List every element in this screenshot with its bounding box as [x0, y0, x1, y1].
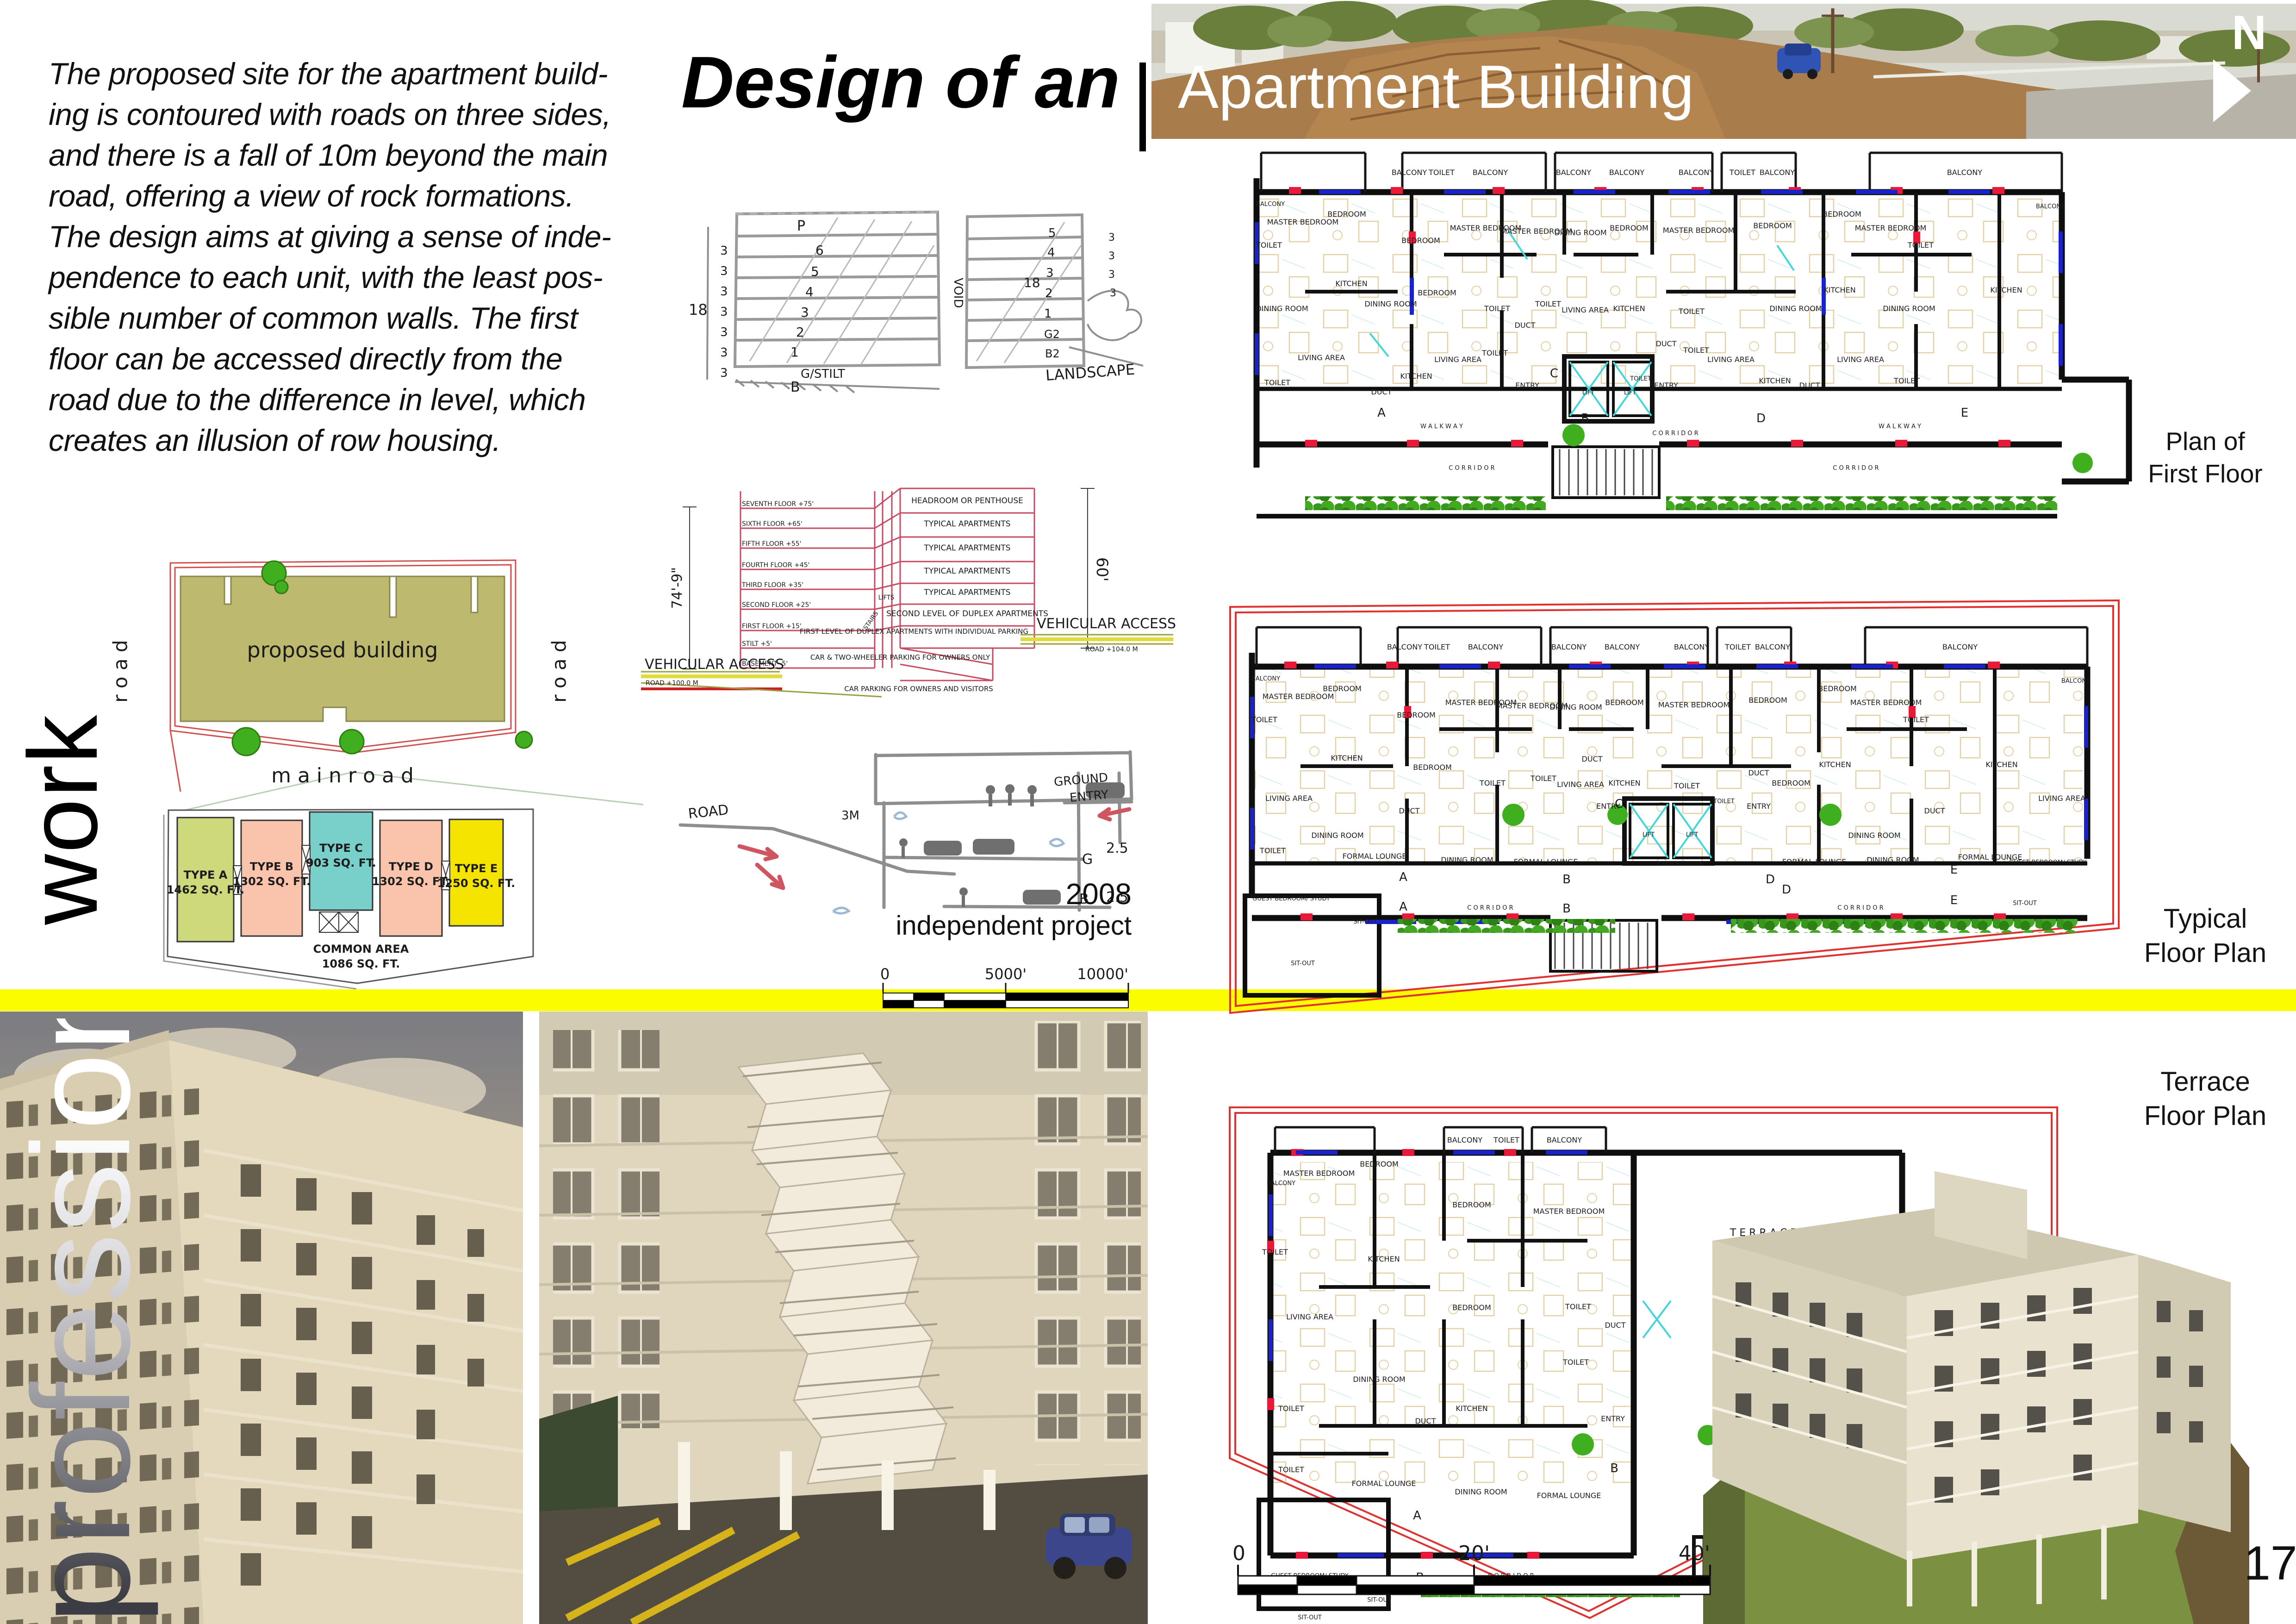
- room-label: BALCONY: [1755, 643, 1791, 651]
- room-label: DINING ROOM: [1769, 304, 1822, 313]
- sketch-r1: 1: [1044, 307, 1052, 321]
- caption-first-floor: Plan of First Floor: [2117, 425, 2293, 490]
- room-label: BALCONY: [1267, 1180, 1295, 1187]
- sketch-tick-3: 3: [720, 305, 728, 319]
- title-separator-bar: [1139, 62, 1146, 151]
- render-photo-staircase: [539, 1012, 1148, 1624]
- room-label: DINING ROOM: [1549, 703, 1602, 712]
- scale-bar-site: 0 5000' 10000': [875, 965, 1143, 1016]
- room-label: LIFT: [1624, 389, 1636, 396]
- zone-headroom: HEADROOM OR PENTHOUSE: [911, 496, 1023, 506]
- type-b-area: 1302 SQ. FT.: [233, 875, 311, 888]
- sketch-g2: G2: [1044, 328, 1060, 341]
- scale-bar-plan: 0 20' 40': [1229, 1542, 1733, 1606]
- room-label: DUCT: [1605, 1321, 1626, 1330]
- room-label: TOILET: [1479, 779, 1506, 787]
- room-label: LIFT: [1582, 389, 1594, 396]
- room-label: TOILET: [1428, 168, 1455, 177]
- corridor-label: C O R R I D O R: [1657, 861, 1703, 868]
- room-label: TOILET: [1565, 1302, 1591, 1311]
- room-label: BEDROOM: [1772, 779, 1811, 787]
- credit-type: independent project: [861, 911, 1132, 941]
- room-label: BEDROOM: [1818, 684, 1857, 693]
- room-label: LIVING AREA: [1557, 780, 1604, 789]
- room-label: TOILET: [1264, 378, 1290, 387]
- caption-typical-floor: Typical Floor Plan: [2117, 902, 2293, 970]
- room-label: BEDROOM: [1748, 696, 1787, 705]
- room-label: BALCONY: [1947, 168, 1983, 177]
- room-label: FORMAL LOUNGE: [1352, 1479, 1416, 1488]
- room-label: SIT-OUT: [1291, 960, 1315, 967]
- room-label: KITCHEN: [1613, 304, 1645, 313]
- room-label: LIFT: [1643, 831, 1655, 838]
- room-label: LIVING AREA: [1298, 353, 1345, 362]
- label-lifts: LIFTS: [878, 594, 895, 601]
- sketch-r-3: 3: [1108, 269, 1115, 281]
- room-label: BEDROOM: [1413, 763, 1452, 772]
- room-label: DUCT: [1415, 1417, 1436, 1425]
- floor-6: SIXTH FLOOR +65': [742, 520, 803, 528]
- zone-typ1: TYPICAL APARTMENTS: [923, 519, 1010, 529]
- sketch-tick-3: 3: [720, 346, 728, 360]
- room-label: GUEST BEDROOM/ STUDY: [1252, 895, 1330, 902]
- room-label: BALCONY: [1674, 643, 1710, 651]
- room-label: TOILET: [1893, 376, 1920, 385]
- room-label: BEDROOM: [1323, 684, 1362, 693]
- common-area-area: 1086 SQ. FT.: [322, 957, 400, 970]
- grid-marker-b: B: [1562, 902, 1571, 916]
- sketch-r5: 5: [1048, 226, 1056, 240]
- room-label: BALCONY: [1468, 643, 1504, 651]
- scale-0: 0: [1232, 1542, 1245, 1565]
- grid-marker-d: D: [1782, 883, 1791, 897]
- page-number: 17: [2244, 1536, 2296, 1591]
- floor-3: THIRD FLOOR +35': [741, 581, 803, 589]
- room-label: KITCHEN: [1368, 1255, 1400, 1263]
- room-label: KITCHEN: [1335, 279, 1367, 288]
- site-building-label: proposed building: [247, 637, 438, 662]
- room-label: DUCT: [1399, 806, 1420, 815]
- room-label: ENTRY: [1601, 1414, 1625, 1423]
- room-label: DUCT: [1799, 381, 1820, 390]
- room-label: BALCONY: [1760, 168, 1795, 177]
- scale-10000: 10000': [1077, 965, 1128, 983]
- grid-marker-d: D: [1756, 412, 1766, 425]
- room-label: MASTER BEDROOM: [1267, 218, 1339, 226]
- room-label: BALCONY: [1605, 643, 1640, 651]
- grid-marker-a: A: [1377, 406, 1386, 420]
- vehicular-access-left: VEHICULAR ACCESS: [645, 656, 784, 673]
- room-label: TOILET: [1724, 643, 1751, 651]
- room-label: TOILET: [1278, 1404, 1304, 1413]
- render-aerial-building: [1648, 1143, 2249, 1624]
- room-label: TOILET: [1674, 781, 1700, 790]
- room-label: BEDROOM: [1823, 210, 1861, 219]
- floor-7: SEVENTH FLOOR +75': [742, 500, 814, 508]
- room-label: LIFT: [1686, 831, 1698, 838]
- dim-60: 60': [1093, 557, 1111, 582]
- sketch-label-b: B: [790, 379, 800, 395]
- portfolio-page: The proposed site for the apartment buil…: [0, 0, 2296, 1624]
- room-label: LIVING AREA: [1434, 355, 1481, 364]
- room-label: BEDROOM: [1360, 1160, 1399, 1168]
- room-label: BEDROOM: [1605, 698, 1644, 707]
- room-label: TOILET: [1907, 241, 1934, 250]
- room-label: BALCONY: [1942, 643, 1978, 651]
- sketch-road: ROAD: [687, 802, 729, 822]
- walkway-label: W A L K W A Y: [1420, 423, 1463, 430]
- room-label: DINING ROOM: [1883, 304, 1935, 313]
- room-label: LIVING AREA: [1265, 794, 1313, 803]
- room-label: LIVING AREA: [2038, 794, 2085, 803]
- room-label: KITCHEN: [1819, 760, 1851, 769]
- room-label: TOILET: [1278, 1465, 1304, 1474]
- room-label: KITCHEN: [1400, 372, 1432, 381]
- sketch-label-landscape: LANDSCAPE: [1045, 361, 1135, 384]
- room-label: KITCHEN: [1823, 286, 1855, 294]
- room-label: DINING ROOM: [1554, 228, 1606, 237]
- sketch-r-18: 18: [1024, 275, 1040, 290]
- sketch-label-2: 2: [796, 325, 804, 340]
- room-label: BALCONY: [1447, 1136, 1483, 1144]
- room-label: LIVING AREA: [1837, 355, 1884, 364]
- room-label: BALCONY: [1547, 1136, 1582, 1144]
- room-label: KITCHEN: [1331, 754, 1363, 762]
- type-a-name: TYPE A: [184, 868, 228, 881]
- sketch-dim-18: 18: [689, 301, 708, 319]
- grid-marker-b: B: [1581, 412, 1589, 425]
- room-label: ENTRY: [1654, 381, 1678, 390]
- room-label: DUCT: [1582, 755, 1603, 763]
- room-label: DUCT: [1656, 339, 1677, 348]
- room-label: BEDROOM: [1452, 1200, 1491, 1209]
- scale-20: 20': [1458, 1542, 1490, 1565]
- room-label: FORMAL LOUNGE: [1537, 1491, 1601, 1500]
- room-label: TOILET: [1535, 300, 1561, 308]
- title-prefix: Design of an: [681, 41, 1120, 125]
- sketch-label-4: 4: [805, 284, 814, 300]
- room-label: MASTER BEDROOM: [1533, 1207, 1605, 1216]
- room-label: LIVING AREA: [1707, 355, 1755, 364]
- room-label: BALCONY: [1473, 168, 1508, 177]
- zone-typ4: TYPICAL APARTMENTS: [923, 588, 1010, 597]
- room-label: KITCHEN: [1608, 779, 1640, 787]
- site-main-road: m a i n r o a d: [271, 764, 414, 787]
- room-label: BALCONY: [1609, 168, 1645, 177]
- sketch-tick-3: 3: [720, 285, 728, 299]
- corridor-label: C O R R I D O R: [1449, 465, 1494, 472]
- room-label: ENTRY: [1747, 802, 1771, 811]
- sketch-3m: 3M: [841, 809, 859, 823]
- sketch-label-stilt: G/STILT: [801, 367, 845, 381]
- room-label: DUCT: [1924, 806, 1945, 815]
- sketch-label-3: 3: [801, 305, 809, 320]
- room-label: DINING ROOM: [1848, 831, 1900, 840]
- walkway-label: W A L K W A Y: [1879, 423, 1921, 430]
- room-label: KITCHEN: [1456, 1404, 1487, 1413]
- grid-marker-d: D: [1766, 873, 1775, 887]
- corridor-label: C O R R I D O R: [1833, 465, 1879, 472]
- scale-40: 40': [1679, 1542, 1710, 1565]
- room-label: TOILET: [1424, 643, 1450, 651]
- corridor-label: C O R R I D O R: [1652, 430, 1698, 437]
- room-label: TOILET: [1262, 1248, 1288, 1256]
- sketch-tick-3: 3: [720, 366, 728, 380]
- room-label: MASTER BEDROOM: [1850, 698, 1922, 707]
- typical-floor-plan: BALCONY TOILET BALCONY BALCONY BALCONY B…: [1226, 600, 2124, 1016]
- project-credit: 2008 independent project: [861, 877, 1132, 941]
- grid-marker-a: A: [1413, 1509, 1421, 1523]
- road-104: ROAD +104.0 M: [1085, 646, 1138, 653]
- sketch-r4: 4: [1047, 246, 1055, 260]
- room-label: LIVING AREA: [1286, 1312, 1333, 1321]
- sketch-label-void: VOID: [951, 278, 965, 308]
- room-label: BALCONY: [1251, 675, 1280, 682]
- type-e-name: TYPE E: [455, 862, 498, 875]
- room-label: BALCONY: [1551, 643, 1587, 651]
- vehicular-access-right: VEHICULAR ACCESS: [1037, 616, 1176, 632]
- room-label: TOILET: [1256, 241, 1282, 250]
- room-label: MASTER BEDROOM: [1263, 692, 1334, 701]
- sketch-r-3: 3: [1108, 250, 1115, 262]
- sketch-label-1: 1: [790, 344, 799, 360]
- room-label: DINING ROOM: [1867, 856, 1919, 864]
- zone-parking-owners: CAR & TWO-WHEELER PARKING FOR OWNERS ONL…: [810, 653, 990, 662]
- floor-1: FIRST FLOOR +15': [742, 623, 802, 630]
- caption-terrace-floor: Terrace Floor Plan: [2117, 1065, 2293, 1133]
- room-label: MASTER BEDROOM: [1663, 226, 1735, 235]
- sketch-label-p: P: [797, 218, 805, 234]
- room-label: DINING ROOM: [1353, 1375, 1405, 1384]
- room-label: MASTER BEDROOM: [1855, 224, 1927, 232]
- type-b-name: TYPE B: [250, 860, 293, 873]
- room-label: TOILET: [1259, 846, 1286, 855]
- room-label: TOILET: [1713, 798, 1734, 805]
- room-label: DINING ROOM: [1256, 304, 1308, 313]
- grid-marker-e: E: [1950, 863, 1958, 877]
- type-c-name: TYPE C: [319, 842, 363, 855]
- floor-stilt: STILT +5': [742, 640, 772, 648]
- grid-marker-b: B: [1562, 873, 1571, 887]
- room-label: BALCONY: [1556, 168, 1592, 177]
- grid-marker-c: C: [1615, 797, 1623, 811]
- title-main: Apartment Building: [1178, 52, 1694, 122]
- site-road-right: r o a d: [548, 640, 571, 702]
- grid-marker-c: C: [1550, 367, 1558, 381]
- room-label: DUCT: [1515, 321, 1536, 330]
- room-label: TOILET: [1530, 774, 1556, 783]
- sketch-label-5: 5: [811, 264, 819, 279]
- zone-typ2: TYPICAL APARTMENTS: [923, 543, 1010, 553]
- room-label: LIVING AREA: [1562, 306, 1609, 314]
- scale-0: 0: [880, 965, 890, 983]
- site-plan: proposed building r o a d r o a d m a i …: [46, 532, 648, 819]
- corridor-label: C O R R I D O R: [1837, 905, 1883, 912]
- room-label: TOILET: [1484, 304, 1510, 313]
- professional-side-label: professional: [1, 1018, 161, 1624]
- room-label: MASTER BEDROOM: [1283, 1169, 1355, 1178]
- room-label: BEDROOM: [1401, 236, 1440, 245]
- zone-parking-visitors: CAR PARKING FOR OWNERS AND VISITORS: [844, 685, 993, 693]
- sketch-r3: 3: [1046, 266, 1054, 280]
- sketch-tick-3: 3: [720, 264, 728, 278]
- dim-74-9: 74'-9": [669, 567, 685, 609]
- room-label: ENTRY: [1515, 381, 1539, 390]
- sketch-b2: B2: [1045, 347, 1060, 360]
- room-label: TOILET: [1630, 375, 1651, 382]
- zone-duplex2: SECOND LEVEL OF DUPLEX APARTMENTS: [886, 609, 1048, 618]
- sketch-25a: 2.5: [1106, 840, 1128, 856]
- north-compass-label: N: [2232, 6, 2266, 61]
- room-label: TOILET: [1493, 1136, 1519, 1144]
- type-d-name: TYPE D: [389, 860, 433, 873]
- room-label: KITCHEN: [1990, 286, 2022, 294]
- room-label: BALCONY: [2061, 678, 2090, 685]
- room-label: KITCHEN: [1759, 376, 1791, 385]
- floor-2: SECOND FLOOR +25': [742, 601, 811, 609]
- sketch-r-3: 3: [1108, 232, 1115, 244]
- room-label: TOILET: [1903, 715, 1929, 724]
- room-label: BEDROOM: [1753, 221, 1792, 230]
- room-label: BALCONY: [1679, 168, 1714, 177]
- intro-paragraph: The proposed site for the apartment buil…: [49, 53, 687, 461]
- scale-5000: 5000': [985, 965, 1027, 983]
- room-label: KITCHEN: [1985, 760, 2017, 769]
- unit-type-legend: TYPE A 1462 SQ. FT. TYPE B 1302 SQ. FT. …: [157, 796, 546, 995]
- room-label: DUCT: [1371, 387, 1392, 396]
- room-label: BEDROOM: [1327, 210, 1366, 219]
- concept-sketch-elevation: P 6 5 4 3 2 1 G/STILT B 3 3 3 3 3 3 3 18…: [680, 171, 1152, 394]
- room-label: SIT-OUT: [2013, 900, 2037, 907]
- room-label: FORMAL LOUNGE: [1514, 857, 1578, 866]
- room-label: BALCONY: [1256, 201, 1285, 208]
- common-area-name: COMMON AREA: [313, 943, 409, 956]
- room-label: TOILET: [1481, 349, 1508, 357]
- room-label: TOILET: [1678, 307, 1705, 316]
- grid-marker-b: B: [1610, 1462, 1618, 1475]
- room-label: DINING ROOM: [1364, 300, 1417, 308]
- sketch-r2: 2: [1045, 287, 1053, 300]
- grid-marker-e: E: [1950, 893, 1958, 907]
- room-label: FORMAL LOUNGE: [1343, 852, 1407, 861]
- room-label: BALCONY: [2036, 203, 2065, 210]
- room-label: BEDROOM: [1397, 711, 1436, 719]
- north-arrow-icon: [2213, 59, 2251, 122]
- room-label: DINING ROOM: [1441, 856, 1493, 864]
- corridor-label: C O R R I D O R: [1467, 905, 1513, 912]
- zone-duplex1: FIRST LEVEL OF DUPLEX APARTMENTS WITH IN…: [800, 627, 1028, 636]
- room-label: BALCONY: [1392, 168, 1427, 177]
- room-label: TOILET: [1729, 168, 1755, 177]
- road-100: ROAD +100.0 M: [646, 680, 698, 687]
- room-label: BALCONY: [1387, 643, 1423, 651]
- room-label: TOILET: [1562, 1358, 1589, 1367]
- credit-year: 2008: [861, 877, 1132, 911]
- sketch-label-6: 6: [815, 243, 824, 258]
- room-label: DINING ROOM: [1311, 831, 1363, 840]
- room-label: GUEST BEDROOM/ STUDY: [2009, 859, 2087, 866]
- room-label: BEDROOM: [1610, 224, 1649, 232]
- grid-marker-a: A: [1399, 870, 1407, 884]
- room-label: DUCT: [1748, 768, 1769, 777]
- sketch-tick-3: 3: [720, 244, 728, 258]
- sketch-r-3: 3: [1110, 287, 1116, 299]
- room-label: TOILET: [1683, 346, 1709, 355]
- grid-marker-a: A: [1399, 900, 1407, 914]
- room-label: BEDROOM: [1452, 1303, 1491, 1312]
- type-c-area: 903 SQ. FT.: [306, 856, 376, 869]
- room-label: SIT-OUT: [1353, 918, 1377, 925]
- room-label: SIT-OUT: [1298, 1614, 1322, 1621]
- floor-5: FIFTH FLOOR +55': [742, 540, 801, 548]
- room-label: BEDROOM: [1418, 288, 1456, 297]
- room-label: FORMAL LOUNGE: [1782, 857, 1847, 866]
- room-label: TOILET: [1251, 715, 1277, 724]
- sketch-g: G: [1082, 851, 1093, 868]
- first-floor-plan: BALCONY TOILET BALCONY BALCONY BALCONY B…: [1250, 139, 2134, 532]
- type-e-area: 1250 SQ. FT.: [437, 877, 516, 890]
- sketch-tick-3: 3: [720, 325, 728, 339]
- room-label: DINING ROOM: [1455, 1487, 1507, 1496]
- grid-marker-e: E: [1961, 406, 1968, 420]
- section-diagram: SEVENTH FLOOR +75' SIXTH FLOOR +65' FIFT…: [641, 447, 1173, 706]
- room-label: MASTER BEDROOM: [1658, 700, 1730, 709]
- zone-typ3: TYPICAL APARTMENTS: [923, 567, 1010, 576]
- floor-4: FOURTH FLOOR +45': [742, 562, 810, 569]
